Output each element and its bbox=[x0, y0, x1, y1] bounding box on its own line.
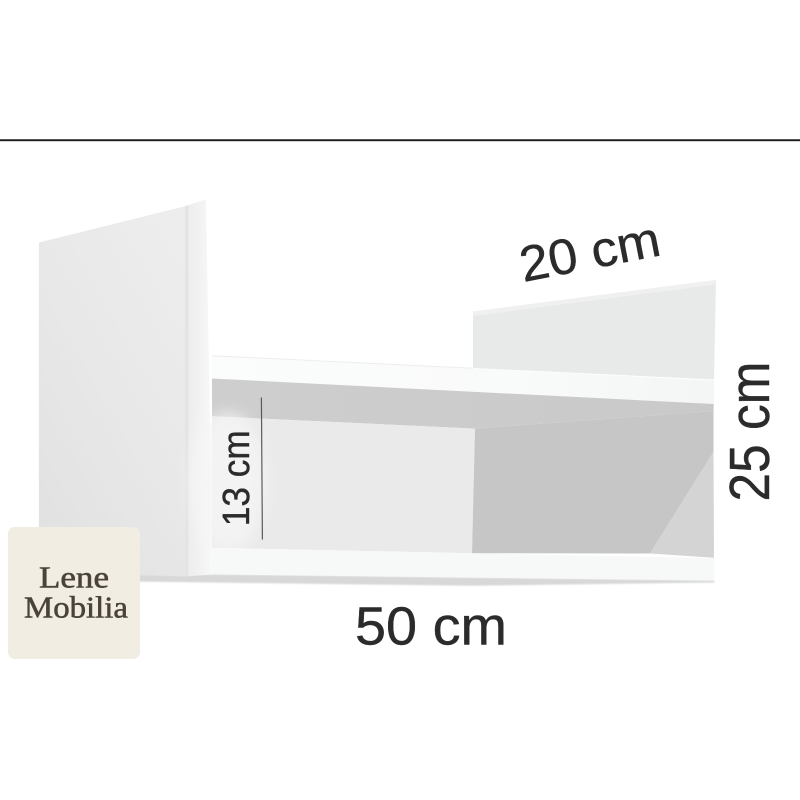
svg-text:50 cm: 50 cm bbox=[355, 597, 507, 657]
svg-text:Mobilia: Mobilia bbox=[24, 590, 128, 625]
svg-text:13 cm: 13 cm bbox=[216, 430, 258, 526]
svg-text:25 cm: 25 cm bbox=[718, 362, 782, 502]
